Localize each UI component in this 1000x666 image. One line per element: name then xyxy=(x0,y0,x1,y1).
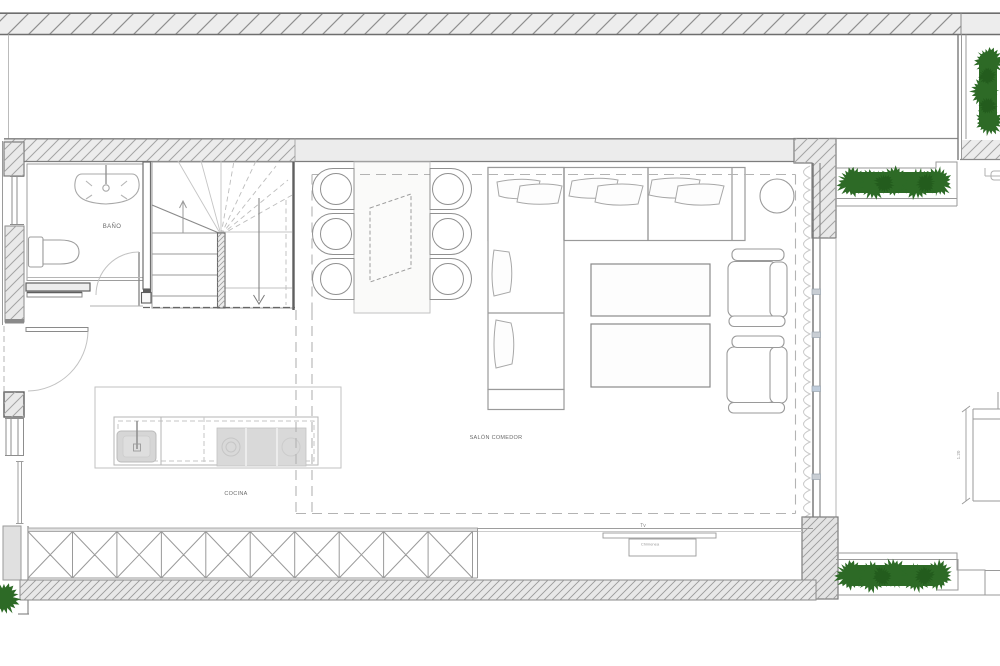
svg-text:BAÑO: BAÑO xyxy=(103,223,122,230)
svg-text:1.20: 1.20 xyxy=(956,450,961,459)
svg-text:SALÓN COMEDOR: SALÓN COMEDOR xyxy=(470,434,523,441)
svg-text:Chimenea: Chimenea xyxy=(641,542,660,547)
svg-text:Tv: Tv xyxy=(640,523,646,529)
svg-text:COCINA: COCINA xyxy=(224,491,247,497)
